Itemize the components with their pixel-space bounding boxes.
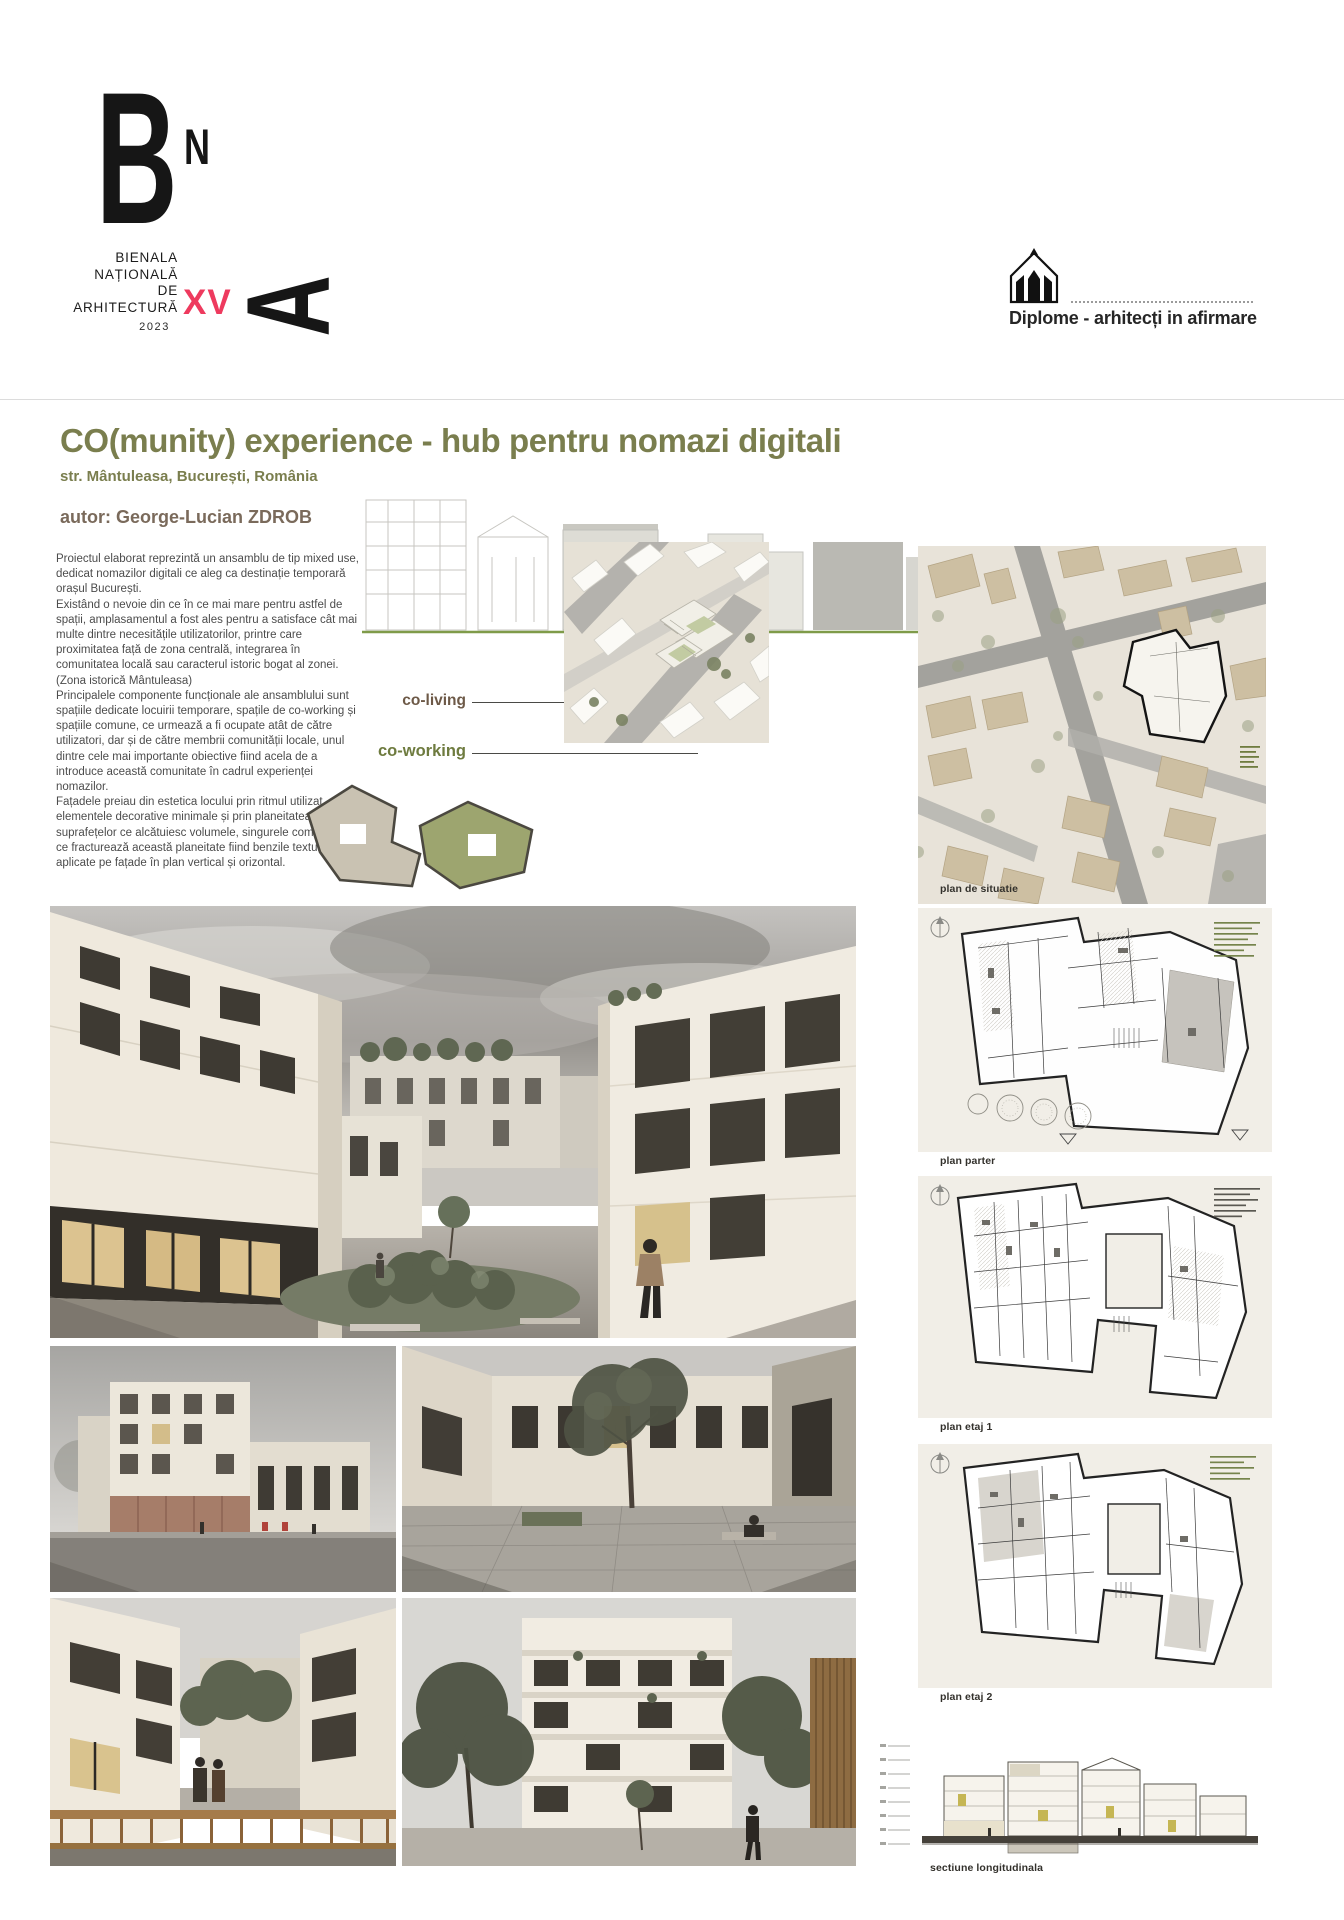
program-label: Diplome - arhitecți in afirmare [1009, 308, 1257, 329]
wordmark-line: ARHITECTURĂ [58, 300, 178, 317]
building-portrait-render-image [402, 1598, 856, 1866]
section-caption: sectiune longitudinala [930, 1862, 1043, 1874]
competition-poster: B N A BIENALA NAȚIONALĂ DE ARHITECTURĂ 2… [0, 0, 1344, 1920]
edition-year: 2023 [58, 319, 178, 336]
program-header: Diplome - arhitecți in afirmare [1007, 246, 1299, 338]
site-plan-image: plan de situatie [918, 546, 1266, 904]
site-plan-caption: plan de situatie [940, 883, 1018, 895]
footprint-concept-diagram [300, 768, 540, 896]
pencil-house-icon [1007, 246, 1061, 304]
floor-1-plan-image [918, 1176, 1272, 1418]
wordmark-line: NAȚIONALĂ [58, 267, 178, 284]
bridge-courtyard-render-image [50, 1598, 396, 1866]
street-corner-render-image [50, 1346, 396, 1592]
wordmark-line: BIENALA [58, 250, 178, 267]
floor-1-caption: plan etaj 1 [940, 1421, 992, 1433]
logo-letter-n: N [184, 122, 210, 172]
wordmark-line: DE [58, 283, 178, 300]
biennale-wordmark: BIENALA NAȚIONALĂ DE ARHITECTURĂ 2023 [58, 250, 178, 336]
edition-number: XV [183, 283, 232, 323]
project-title: CO(munity) experience - hub pentru nomaz… [60, 422, 841, 460]
logo-letter-a: A [230, 275, 348, 336]
axonometric-render-image [564, 542, 769, 743]
hero-courtyard-render-image [50, 906, 856, 1338]
ground-floor-caption: plan parter [940, 1155, 995, 1167]
header-divider [0, 399, 1344, 400]
floor-2-caption: plan etaj 2 [940, 1691, 992, 1703]
floor-2-plan-image [918, 1444, 1272, 1688]
courtyard-tree-render-image [402, 1346, 856, 1592]
dotted-rule [1071, 301, 1253, 303]
logo-letter-b: B [96, 64, 175, 252]
co-working-leader-line [472, 753, 698, 754]
project-author: autor: George-Lucian ZDROB [60, 507, 312, 528]
section-level-marks [880, 1740, 914, 1852]
longitudinal-section-image [918, 1736, 1262, 1858]
project-location: str. Mântuleasa, București, România [60, 468, 318, 485]
bna-logo: B N A [96, 92, 266, 242]
co-working-label: co-working [352, 742, 466, 761]
ground-floor-plan-image [918, 908, 1272, 1152]
distant-person-figure [376, 1253, 384, 1278]
co-living-label: co-living [366, 692, 466, 710]
